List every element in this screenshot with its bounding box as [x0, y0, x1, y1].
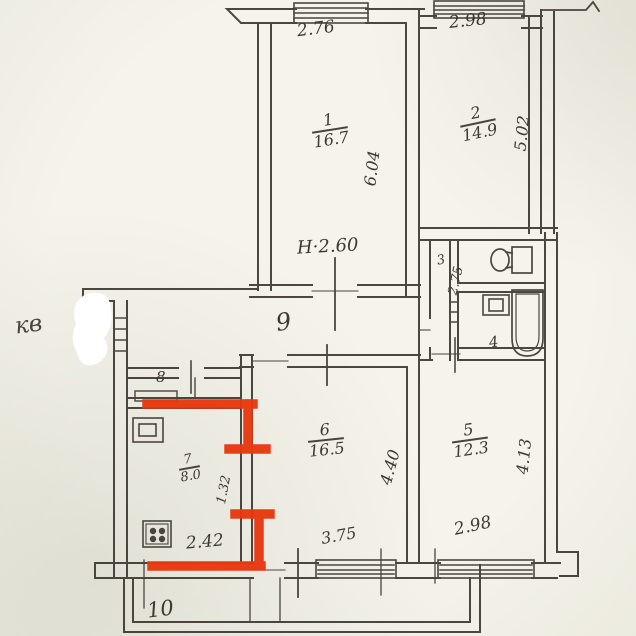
bathtub-icon [512, 290, 543, 356]
room9-label: 9 [274, 309, 293, 336]
stove-icon [143, 521, 171, 547]
room2-bottom-wall [419, 228, 557, 240]
hall-room6-wall [240, 355, 420, 367]
left-outer-wall [114, 301, 127, 578]
wardrobe-icon [133, 418, 163, 442]
floor-plan-scan: кв 1 16.7 2 14.9 5 12.3 6 16.5 7 8.0 9 8… [0, 0, 636, 636]
washbasin-icon [483, 295, 509, 315]
floorplan-linework [0, 0, 636, 636]
room10-label: 10 [146, 596, 175, 621]
note-kv: кв [14, 311, 44, 338]
room1-label: 1 16.7 [309, 109, 350, 151]
room5-room6-wall [407, 240, 430, 563]
ceiling-height-label: Н·2.60 [297, 236, 359, 258]
dim-room7-width: 2.42 [185, 532, 224, 553]
toilet-icon [491, 247, 532, 273]
break-mark [541, 2, 599, 11]
room7-area: 8.0 [179, 467, 202, 485]
dim-room2-width: 2.98 [448, 11, 488, 33]
hall-top-wall [83, 289, 258, 301]
dim-room5-depth: 4.13 [515, 438, 535, 475]
white-correction-blob [73, 293, 112, 366]
room6-left-wall [241, 355, 252, 563]
room1-room2-wall [406, 9, 419, 297]
room4-label: 4 [488, 334, 500, 351]
room6-window [316, 560, 396, 578]
room5-label: 5 12.3 [450, 420, 490, 461]
room6-label: 6 16.5 [306, 420, 345, 460]
outer-right-wall [529, 2, 599, 576]
room1-left-wall [258, 23, 271, 290]
room5-window [438, 560, 534, 578]
dim-room2-depth: 5.02 [513, 115, 533, 152]
room6-area: 16.5 [308, 439, 345, 460]
balcony-walls [124, 565, 480, 632]
room8-label: 8 [156, 370, 166, 386]
room5-top-wall [419, 338, 545, 372]
room2-label: 2 14.9 [457, 102, 499, 145]
